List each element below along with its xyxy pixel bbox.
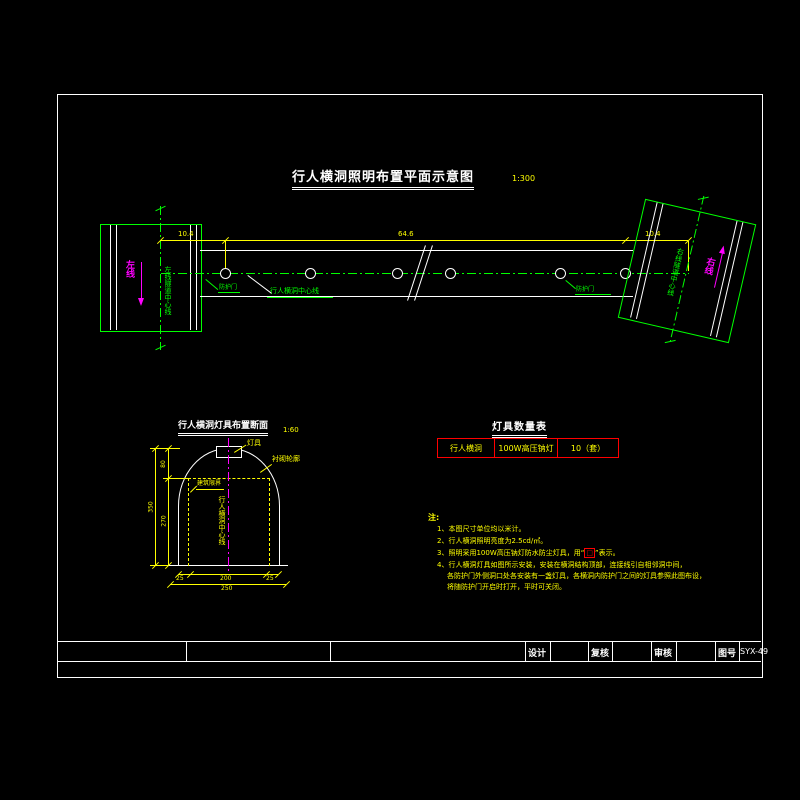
left-direction-label: 左线 [124, 260, 133, 278]
note-3-text: 3、照明采用100W高压钠灯防水防尘灯具，用“ [437, 549, 584, 557]
note-2: 2、行人横洞照明亮度为2.5cd/㎡。 [437, 538, 547, 545]
lining-label: 衬砌轮廓 [272, 456, 300, 463]
titleblock-divider [651, 641, 652, 661]
corridor-centerline-label: 行人横洞中心线 [270, 288, 319, 295]
dimension-extension [225, 241, 226, 268]
note-4b: 各防护门外侧洞口处各安装有一盏灯具，各横洞内防护门之间的灯具参照此图布设， [447, 573, 706, 580]
section-centerline-label: 行人横洞中心线 [218, 496, 225, 545]
corridor-centerline [161, 273, 689, 274]
note-3-text-after: ”表示。 [595, 549, 620, 557]
section-dim-left-lower: 270 [162, 515, 168, 526]
corridor-top-wall [200, 250, 633, 251]
note-1: 1、本图尺寸单位均以米计。 [437, 526, 525, 533]
clearance-label: 建筑限界 [197, 481, 221, 487]
lamp-label: 灯具 [247, 440, 261, 447]
section-dim-left-upper: 80 [161, 460, 167, 468]
note-4a: 4、行人横洞灯具如图所示安装，安装在横洞结构顶部，连接线引自相邻洞中间， [437, 562, 686, 569]
leader-underline [575, 294, 611, 295]
left-tunnel-centerline [160, 206, 161, 350]
section-dim-line [155, 448, 156, 565]
titleblock-divider [330, 641, 331, 661]
table-title: 灯具数量表 [492, 418, 547, 438]
titleblock-divider [588, 641, 589, 661]
leader-underline [196, 489, 224, 490]
titleblock-bottom-line [58, 661, 761, 662]
door-label-left: 防护门 [219, 285, 237, 291]
titleblock-review-label: 审核 [654, 646, 672, 659]
section-dim-line [168, 448, 169, 565]
notes-heading: 注: [428, 512, 439, 523]
section-centerline [228, 438, 229, 572]
leader-underline [267, 297, 333, 298]
plan-dim-mid: 64.6 [398, 231, 414, 238]
door-label-right: 防护门 [576, 287, 594, 293]
titleblock-check-label: 复核 [591, 646, 609, 659]
titleblock-dwgno-label: 图号 [718, 646, 736, 659]
lamp-symbol [445, 268, 456, 279]
titleblock-divider [676, 641, 677, 661]
lamp-symbol [392, 268, 403, 279]
titleblock-top-line [58, 641, 761, 642]
left-portal-lining-line [116, 225, 117, 330]
titleblock-divider [715, 641, 716, 661]
lamp-quantity-table: 行人横洞 100W高压钠灯 10（套） [437, 438, 619, 458]
plan-scale: 1:300 [512, 174, 535, 183]
plan-dim-left: 10.4 [178, 231, 194, 238]
section-dim-bottom-total: 250 [221, 586, 232, 592]
section-dim-left-total: 350 [149, 501, 155, 512]
cad-drawing-canvas: 行人横洞照明布置平面示意图 1:300 左线 左线隧道中心线 10.4 64.6… [0, 0, 800, 800]
lamp-symbol [555, 268, 566, 279]
plan-dimension-line [160, 240, 688, 241]
plan-title: 行人横洞照明布置平面示意图 [292, 166, 474, 190]
left-portal-lining-line [110, 225, 111, 330]
lamp-fixture [216, 446, 242, 458]
note-4c: 将随防护门开启时打开，平时可关闭。 [447, 584, 566, 591]
lamp-symbol [305, 268, 316, 279]
table-cell-lamp-type: 100W高压钠灯 [495, 439, 558, 457]
table-cell-quantity: 10（套） [558, 439, 618, 457]
titleblock-divider [550, 641, 551, 661]
titleblock-dwgno-value: SYX-49 [740, 647, 768, 656]
section-dim-bottom-right: 25 [266, 576, 274, 582]
leader-underline [218, 292, 240, 293]
note-3: 3、照明采用100W高压钠灯防水防尘灯具，用“□”表示。 [437, 550, 620, 557]
titleblock-divider [612, 641, 613, 661]
section-title: 行人横洞灯具布置断面 [178, 418, 268, 436]
left-direction-arrow [138, 298, 144, 306]
left-direction-arrow-shaft [141, 262, 142, 298]
section-dim-bottom-left: 25 [176, 576, 184, 582]
titleblock-design-label: 设计 [528, 646, 546, 659]
titleblock-divider [186, 641, 187, 661]
lamp-symbol [220, 268, 231, 279]
titleblock-divider [525, 641, 526, 661]
clearance-gauge-box [188, 478, 270, 566]
section-dim-bottom-mid: 200 [220, 576, 231, 582]
section-scale: 1:60 [283, 427, 299, 434]
lamp-symbol-legend: □ [584, 548, 595, 558]
table-cell-location: 行人横洞 [438, 439, 495, 457]
